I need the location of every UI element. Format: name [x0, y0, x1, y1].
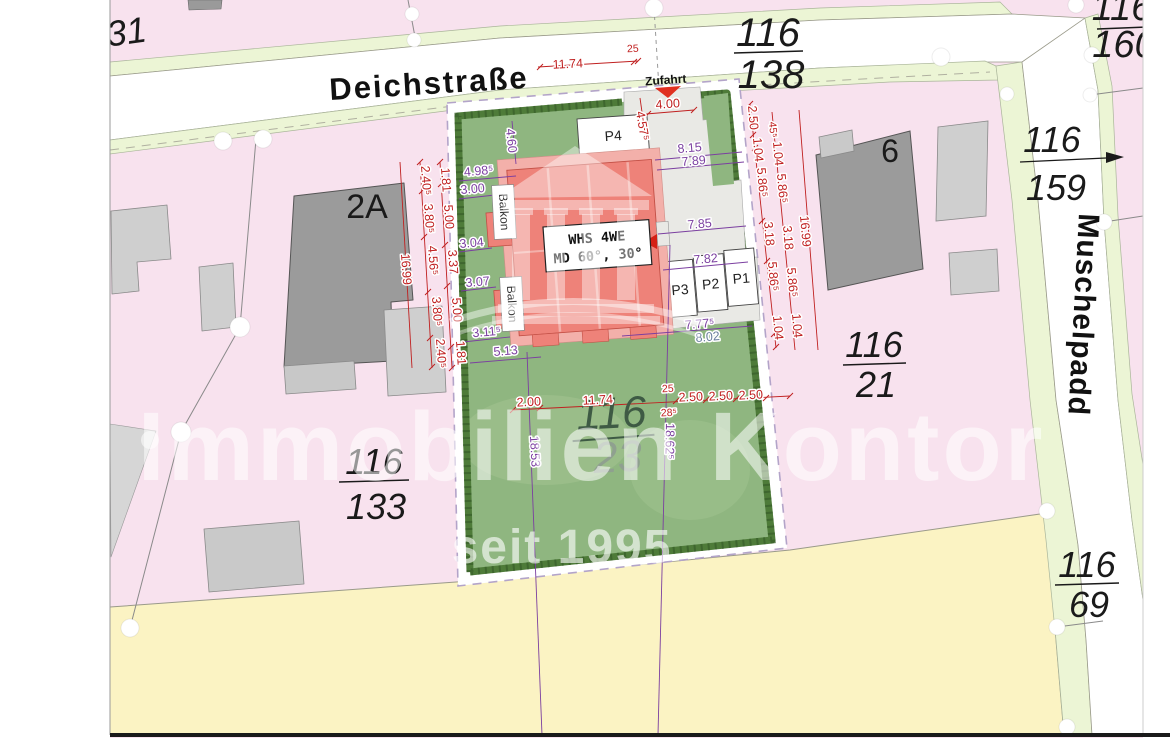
svg-text:2.40⁵: 2.40⁵ [418, 165, 434, 195]
svg-text:5.86⁵: 5.86⁵ [784, 267, 801, 298]
stall-p4-label: P4 [604, 127, 622, 144]
svg-text:116: 116 [1058, 544, 1116, 585]
svg-text:3.80⁵: 3.80⁵ [421, 203, 437, 233]
svg-text:1.04: 1.04 [770, 315, 786, 341]
svg-text:3.00: 3.00 [460, 181, 486, 197]
watermark-dot-icon [141, 431, 159, 449]
svg-text:16.99: 16.99 [797, 215, 814, 247]
svg-text:4.60: 4.60 [503, 128, 519, 154]
parcel-label-116-138: 116 138 [734, 11, 805, 97]
svg-text:4.00: 4.00 [655, 96, 680, 112]
svg-text:1.81: 1.81 [453, 340, 469, 365]
svg-text:2.50: 2.50 [745, 105, 761, 131]
svg-text:3.80⁵: 3.80⁵ [429, 296, 445, 326]
svg-text:5.86⁵: 5.86⁵ [754, 167, 771, 198]
svg-text:1.81: 1.81 [438, 167, 454, 192]
svg-text:159: 159 [1026, 167, 1086, 208]
svg-text:5.13: 5.13 [493, 343, 519, 359]
svg-text:4.98⁵: 4.98⁵ [463, 163, 494, 180]
svg-text:3.04: 3.04 [459, 235, 485, 251]
svg-text:7.89: 7.89 [681, 153, 707, 169]
svg-text:16.99: 16.99 [398, 253, 414, 285]
stall-p3-label: P3 [671, 281, 690, 298]
neighbour-buildings-east [816, 121, 999, 295]
svg-text:7.82: 7.82 [693, 251, 719, 267]
svg-text:3.18: 3.18 [780, 225, 796, 251]
svg-text:11.74: 11.74 [552, 56, 583, 72]
svg-text:5.86⁵: 5.86⁵ [774, 173, 791, 204]
svg-text:25: 25 [627, 43, 639, 56]
svg-text:116: 116 [736, 11, 801, 55]
watermark-brand: S Immobilien Kontor [40, 392, 1045, 501]
stall-p2-label: P2 [701, 275, 720, 292]
svg-text:45⁵: 45⁵ [766, 121, 779, 138]
svg-text:2.40⁵: 2.40⁵ [433, 338, 449, 368]
access-label: Zufahrt [645, 72, 687, 89]
svg-text:3.18: 3.18 [761, 221, 777, 247]
building-label-2a: 2A [346, 188, 388, 226]
svg-text:116: 116 [845, 324, 903, 365]
svg-text:4.56⁵: 4.56⁵ [425, 245, 441, 275]
bottom-frame-line [110, 733, 1170, 737]
svg-text:69: 69 [1069, 584, 1109, 625]
site-plan: P4 P3 P2 P1 [0, 0, 1170, 738]
svg-text:5.00: 5.00 [441, 204, 457, 229]
svg-text:5.86⁵: 5.86⁵ [765, 261, 782, 292]
svg-text:138: 138 [738, 53, 805, 97]
building-label-6: 6 [881, 133, 899, 169]
stall-p1-label: P1 [732, 269, 751, 286]
left-margin [0, 0, 110, 738]
svg-text:1.04: 1.04 [770, 141, 786, 167]
svg-text:7.85: 7.85 [687, 216, 713, 232]
right-margin [1143, 0, 1170, 738]
svg-text:116: 116 [1023, 119, 1081, 160]
svg-text:1.04: 1.04 [789, 313, 805, 339]
svg-text:3.07: 3.07 [465, 274, 491, 290]
svg-text:1.04: 1.04 [750, 137, 766, 163]
watermark-since: seit 1995 [452, 521, 673, 574]
svg-text:3.37: 3.37 [445, 249, 461, 274]
